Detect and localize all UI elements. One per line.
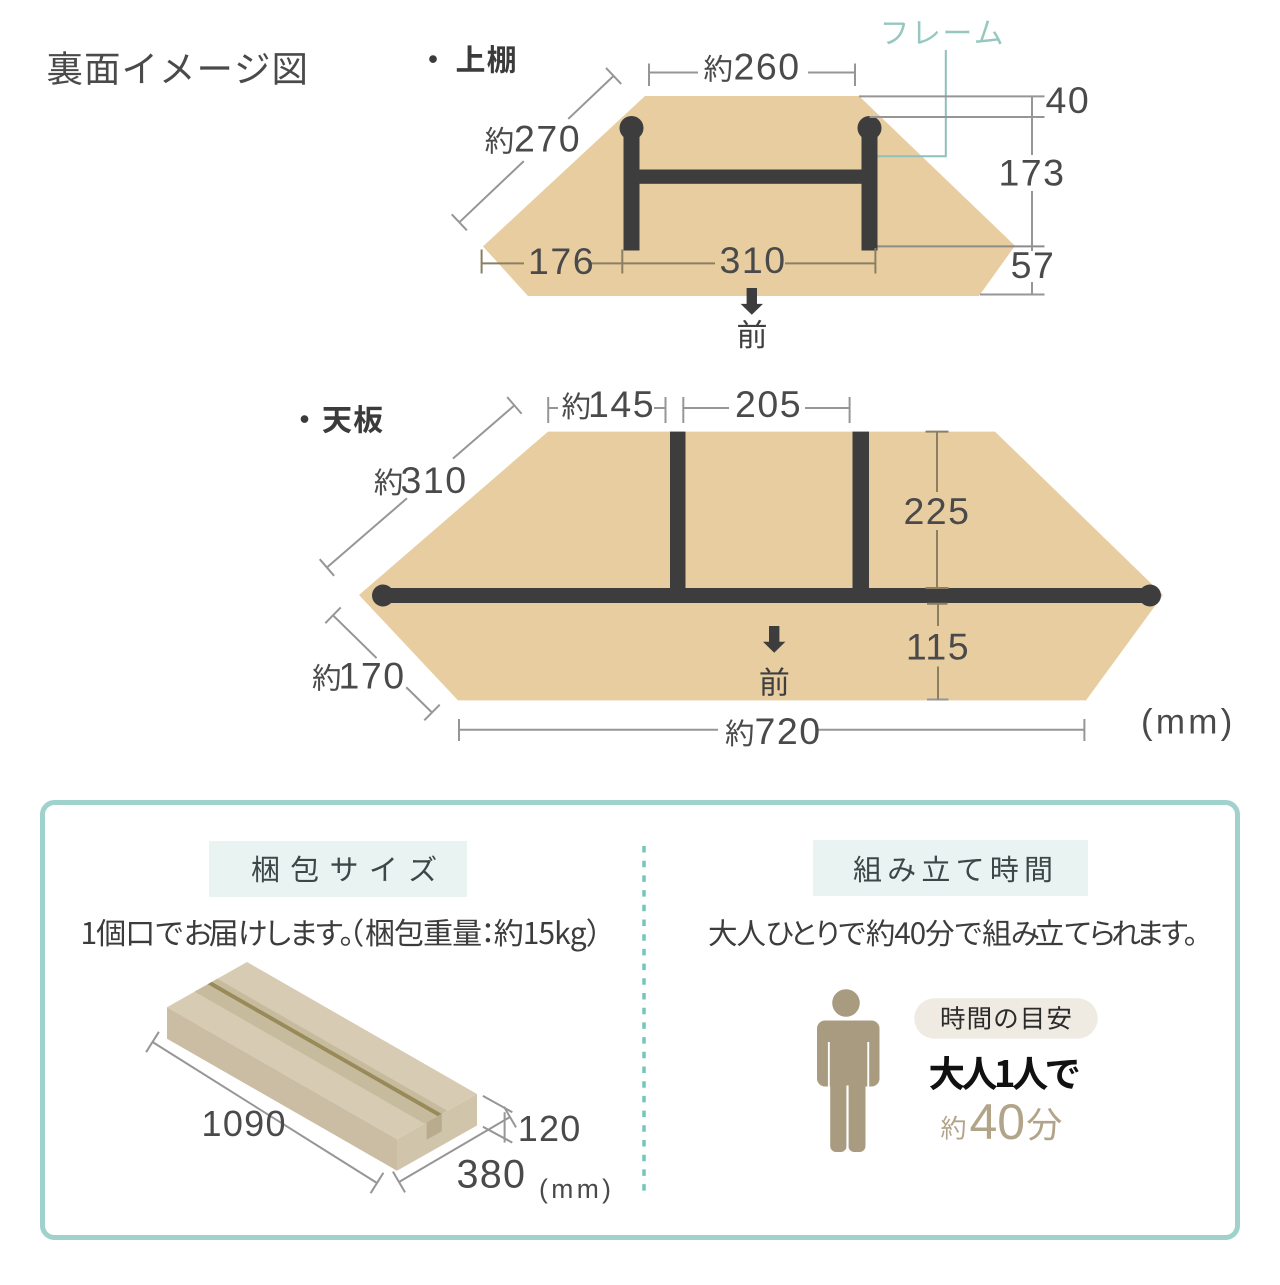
svg-text:120: 120 <box>518 1108 582 1149</box>
svg-text:170: 170 <box>339 655 406 697</box>
svg-text:260: 260 <box>734 46 801 88</box>
svg-text:57: 57 <box>1011 244 1056 286</box>
svg-text:310: 310 <box>720 239 787 281</box>
svg-text:115: 115 <box>906 626 970 668</box>
svg-text:310: 310 <box>401 459 468 501</box>
svg-text:40: 40 <box>970 1094 1026 1150</box>
svg-text:720: 720 <box>755 710 822 752</box>
svg-text:173: 173 <box>998 152 1065 194</box>
svg-text:145: 145 <box>588 383 655 425</box>
svg-text:270: 270 <box>514 118 581 160</box>
svg-text:1090: 1090 <box>202 1103 287 1144</box>
svg-text:176: 176 <box>528 240 595 282</box>
svg-text:40: 40 <box>1046 79 1091 121</box>
svg-text:380: 380 <box>457 1153 527 1197</box>
svg-text:(mm): (mm) <box>1141 703 1235 742</box>
svg-text:205: 205 <box>735 383 802 425</box>
svg-text:225: 225 <box>903 490 970 532</box>
svg-text:(mm): (mm) <box>539 1174 614 1204</box>
